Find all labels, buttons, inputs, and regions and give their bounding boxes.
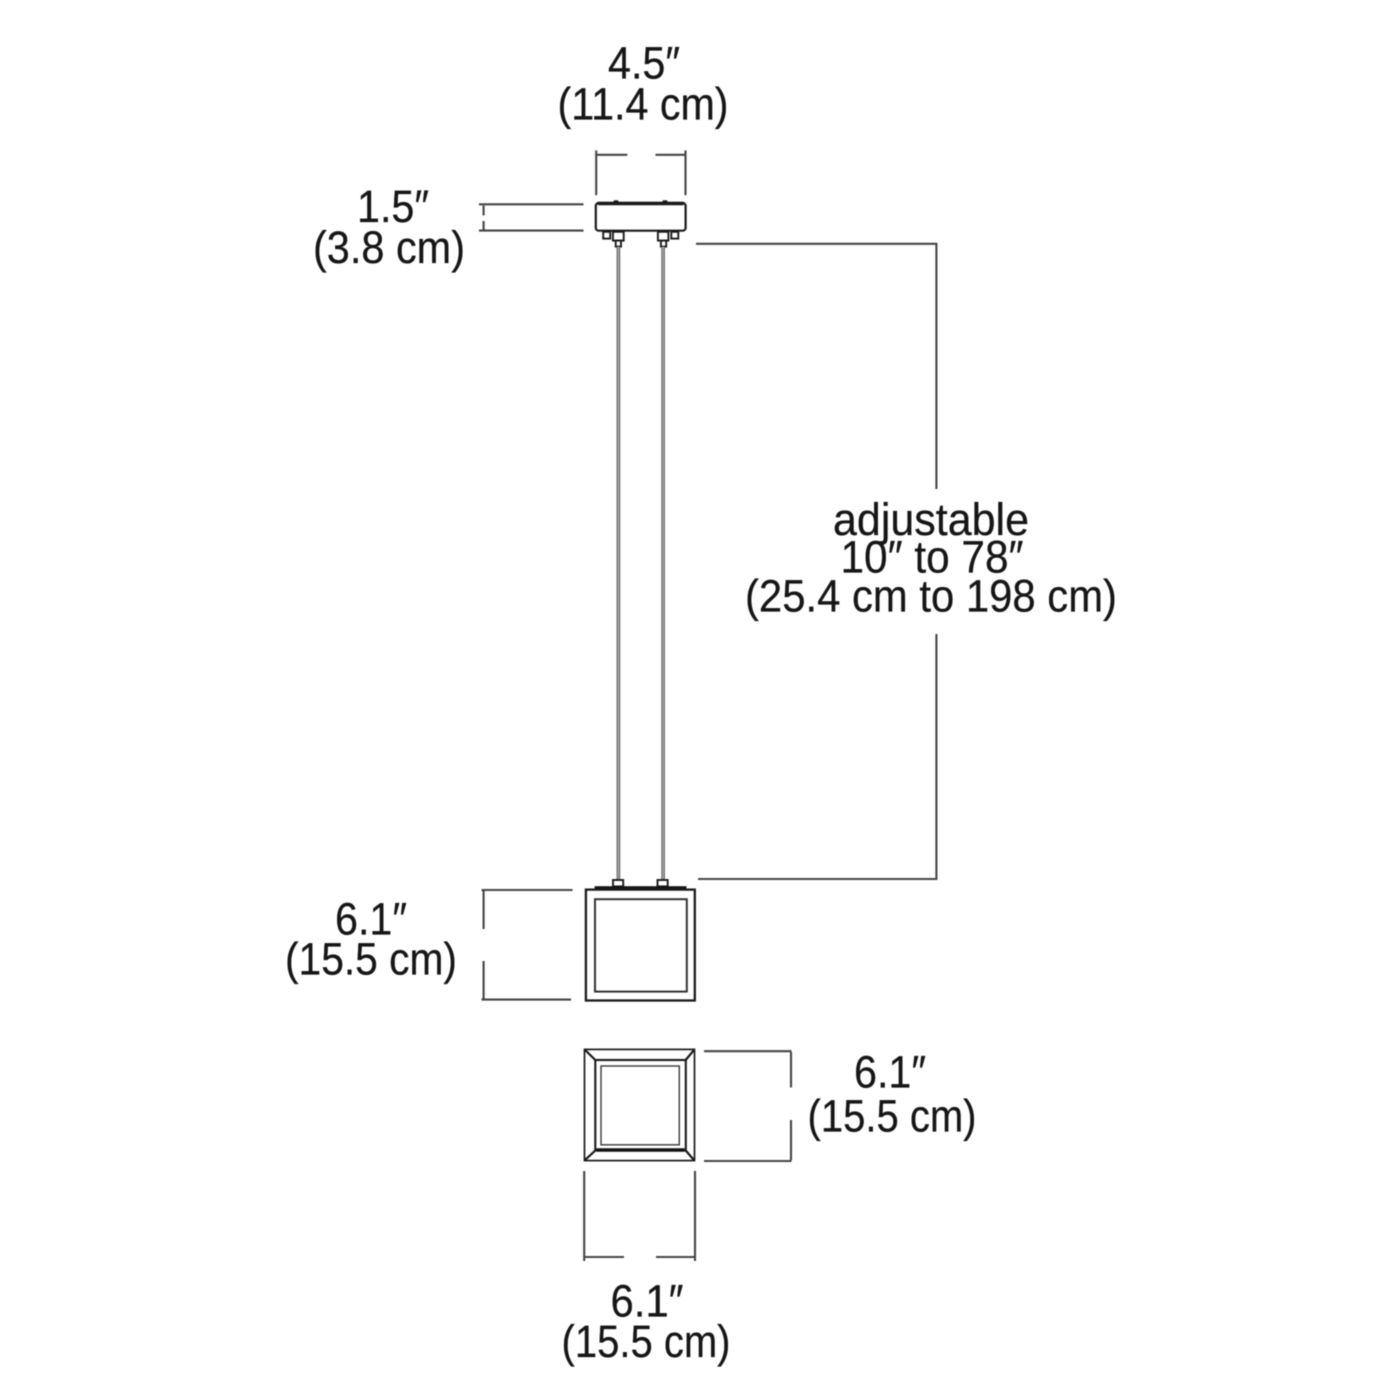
svg-text:(15.5 cm): (15.5 cm) bbox=[285, 934, 457, 985]
svg-text:(15.5 cm): (15.5 cm) bbox=[808, 1091, 977, 1142]
svg-text:(3.8 cm): (3.8 cm) bbox=[313, 222, 465, 273]
svg-text:(15.5 cm): (15.5 cm) bbox=[562, 1316, 731, 1367]
svg-text:(11.4 cm): (11.4 cm) bbox=[558, 79, 729, 130]
svg-text:(25.4 cm to 198 cm): (25.4 cm to 198 cm) bbox=[745, 571, 1117, 622]
